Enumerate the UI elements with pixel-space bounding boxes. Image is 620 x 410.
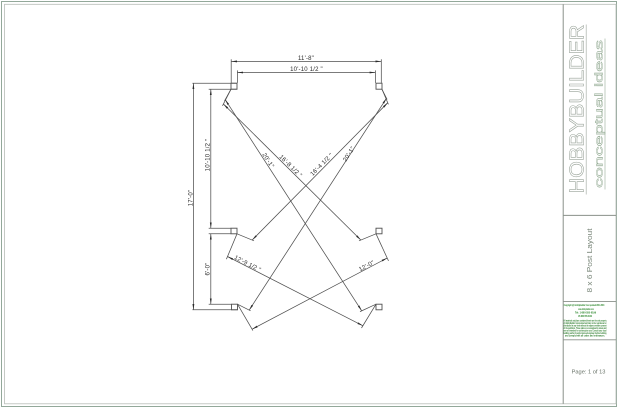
svg-text:US 800-555-0123: US 800-555-0123: [578, 314, 592, 318]
svg-text:6'-0": 6'-0": [206, 263, 212, 276]
svg-text:conceptual ideas: conceptual ideas: [594, 40, 606, 188]
svg-text:10'-10 1/2 ": 10'-10 1/2 ": [206, 139, 212, 172]
svg-text:11'-8": 11'-8": [298, 56, 314, 62]
svg-text:17'-0": 17'-0": [189, 190, 195, 206]
svg-text:8 x 6 Post Layout: 8 x 6 Post Layout: [585, 227, 594, 292]
svg-text:Page: 1 of 13: Page: 1 of 13: [572, 369, 606, 375]
svg-text:10'-10 1/2 ": 10'-10 1/2 ": [290, 67, 323, 73]
svg-text:HOBBYBUILDER: HOBBYBUILDER: [566, 24, 588, 193]
svg-text:and comply with all codes and: and comply with all codes and ordinances…: [565, 334, 605, 338]
